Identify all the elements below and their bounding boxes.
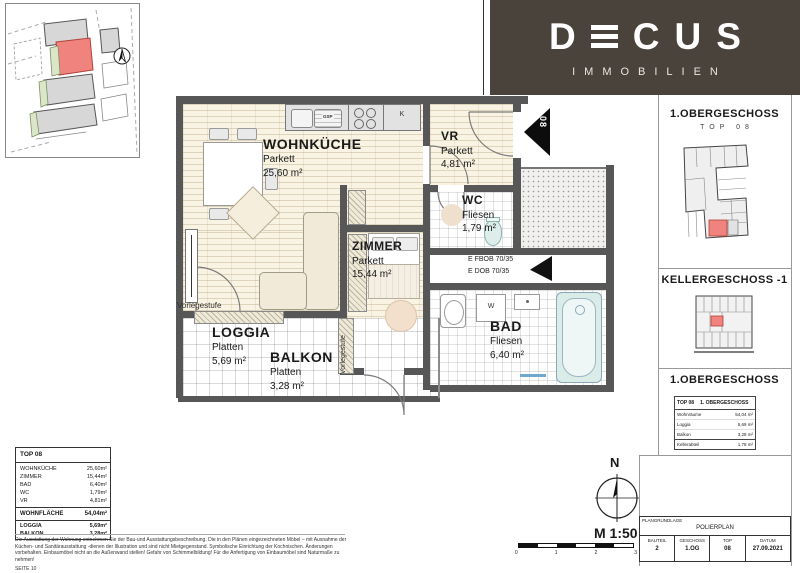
step-label-horizontal: Vorlegestufe	[177, 301, 221, 310]
radiator-mark	[191, 235, 192, 297]
room-label-balkon: BALKON Platten 3,28 m²	[270, 349, 333, 392]
legend-table: TOP 08 WOHNKÜCHE25,60m² ZIMMER15,44m² BA…	[15, 447, 111, 540]
table-header-top: TOP 08	[677, 399, 694, 407]
room-floor: Parkett	[263, 154, 362, 166]
legend-row: VR4,81m²	[16, 497, 110, 505]
table-row: Loggia 5,69 m²	[675, 419, 755, 429]
legend-row: BAD6,40m²	[16, 481, 110, 489]
highlighted-building	[56, 38, 93, 75]
step-label-vertical: Vorlegestufe	[340, 318, 347, 374]
sidebar-border-right	[791, 95, 792, 566]
sidebar-section3-title: 1.OBERGESCHOSS	[658, 374, 791, 386]
kitchen-sink	[291, 109, 313, 128]
room-name: LOGGIA	[212, 324, 270, 340]
stove-burner-2	[366, 108, 376, 118]
table-row: Kellerabteil 1,78 m²	[675, 439, 755, 449]
room-label-wohnkueche: WOHNKÜCHE Parkett 25,60 m²	[263, 136, 362, 179]
disclaimer-line: vorbehalten. Einbaumöbel nicht an die Au…	[15, 550, 355, 563]
legend-outdoor-row: LOGGIA5,69m²	[16, 522, 110, 530]
scale-bar	[518, 543, 634, 548]
titleblock-cell-geschoss: GESCHOSS 1.OG	[675, 536, 710, 562]
table-row: Balkon 3,28 m²	[675, 429, 755, 439]
brand-logo: D C U S	[549, 18, 741, 55]
row-value: 54,04 m²	[735, 410, 753, 419]
room-area: 15,44 m²	[352, 269, 402, 281]
titleblock-cell-bauteil: BAUTEIL 2	[640, 536, 675, 562]
row-value: 1,78 m²	[738, 440, 753, 449]
table-header-floor: 1. OBERGESCHOSS	[700, 399, 748, 407]
room-name: WC	[462, 194, 496, 208]
sidebar-area-table: TOP 08 1. OBERGESCHOSS Wohnräume 54,04 m…	[674, 396, 756, 450]
title-block: PLANGRUNDLAGE POLIERPLAN BAUTEIL 2 GESCH…	[639, 516, 791, 562]
room-label-bad: BAD Fliesen 6,40 m²	[490, 318, 524, 361]
room-label-wc: WC Fliesen 1,79 m²	[462, 194, 496, 235]
stove-burner-1	[354, 108, 364, 118]
fridge-label: K	[384, 111, 420, 118]
room-area: 3,28 m²	[270, 381, 333, 393]
room-area: 1,79 m²	[462, 223, 496, 235]
room-area: 4,81 m²	[441, 159, 475, 171]
room-floor: Platten	[270, 367, 333, 379]
room-floor: Fliesen	[462, 210, 496, 222]
sidebar-divider-2	[658, 368, 791, 369]
brand-letter-d: D	[549, 18, 576, 55]
room-name: VR	[441, 130, 475, 144]
room-floor: Parkett	[441, 146, 475, 158]
row-value: 5,69 m²	[738, 420, 753, 429]
scale-tick: 3	[634, 550, 637, 556]
sidebar-section1-title: 1.OBERGESCHOSS	[658, 108, 791, 120]
shaft-label-2: E DOB 70/35	[468, 268, 509, 275]
room-floor: Parkett	[352, 256, 402, 268]
overview-plan-1og	[676, 140, 772, 258]
site-plan	[5, 3, 140, 158]
table-row: Wohnräume 54,04 m²	[675, 410, 755, 419]
page-number: SEITE 10	[15, 566, 355, 573]
row-label: Balkon	[677, 430, 691, 439]
disclaimer: Die Ausstattung der Wohnung entnehmen Si…	[15, 537, 355, 573]
round-rug	[385, 300, 417, 332]
sidebar-divider-3	[639, 455, 791, 456]
banner-edge-line	[483, 0, 484, 95]
legend-row: ZIMMER15,44m²	[16, 473, 110, 481]
row-label: Loggia	[677, 420, 691, 429]
legend-title: TOP 08	[16, 448, 110, 463]
kitchen-counter: GSP K	[285, 104, 421, 131]
room-area: 6,40 m²	[490, 350, 524, 362]
cabinet-knob	[526, 300, 529, 303]
room-label-vr: VR Parkett 4,81 m²	[441, 130, 475, 171]
room-area: 5,69 m²	[212, 356, 270, 368]
row-label: Kellerabteil	[677, 440, 699, 449]
shaft-label-1: E FBOB 70/35	[468, 256, 513, 263]
titleblock-cell-top: TOP 08	[710, 536, 745, 562]
north-label: N	[610, 455, 619, 470]
dining-chair	[237, 128, 257, 140]
scale-label: M 1:50	[594, 525, 638, 541]
room-name: BAD	[490, 318, 524, 334]
washer-label: W	[476, 303, 506, 310]
bathroom-sink-basin	[444, 300, 464, 325]
brand-letter-u: U	[675, 18, 702, 55]
scale-ticks: 0 1 2 3	[515, 550, 637, 556]
brand-banner: D C U S IMMOBILIEN	[490, 0, 800, 95]
legend-row: WOHNKÜCHE25,60m²	[16, 465, 110, 473]
sofa-seat	[259, 272, 307, 310]
room-name: ZIMMER	[352, 240, 402, 254]
room-name: BALKON	[270, 349, 333, 365]
room-label-loggia: LOGGIA Platten 5,69 m²	[212, 324, 270, 367]
shower-strip	[520, 374, 546, 377]
legend-row: WC1,79m²	[16, 489, 110, 497]
scale-tick: 0	[515, 550, 518, 556]
sidebar-section1-subtitle: TOP 08	[658, 124, 791, 131]
disclaimer-rule	[15, 534, 345, 535]
brand-letter-s: S	[716, 18, 741, 55]
sidebar-divider-1	[658, 268, 791, 269]
plan-type: POLIERPLAN	[640, 525, 790, 531]
compass-icon	[594, 474, 640, 522]
stove-burner-3	[354, 119, 364, 129]
brand-letter-c: C	[633, 18, 660, 55]
row-label: Wohnräume	[677, 410, 701, 419]
dining-chair	[209, 128, 229, 140]
dining-chair	[209, 208, 229, 220]
room-area: 25,60 m²	[263, 168, 362, 180]
scale-tick: 2	[594, 550, 597, 556]
dishwasher-label: GSP	[322, 114, 334, 119]
overview-unit-highlight	[709, 220, 727, 236]
row-value: 3,28 m²	[738, 430, 753, 439]
disclaimer-line: Die Ausstattung der Wohnung entnehmen Si…	[15, 537, 355, 544]
room-label-zimmer: ZIMMER Parkett 15,44 m²	[352, 240, 402, 281]
legend-total-row: WOHNFLÄCHE54,04m²	[16, 507, 110, 520]
unit-number: 08	[538, 116, 548, 136]
sofa-chaise	[303, 212, 339, 310]
site-plan-drawing	[6, 4, 139, 157]
pouf	[441, 204, 463, 226]
cabinet-tall	[348, 190, 366, 225]
titleblock-cell-datum: DATUM 27.09.2021	[746, 536, 790, 562]
room-name: WOHNKÜCHE	[263, 136, 362, 152]
plan-basis-label: PLANGRUNDLAGE	[642, 518, 682, 523]
room-floor: Fliesen	[490, 336, 524, 348]
overview-plan-keller	[692, 292, 756, 358]
keller-unit-highlight	[711, 316, 723, 326]
sidebar-table-header: TOP 08 1. OBERGESCHOSS	[675, 397, 755, 410]
stylized-e-icon	[591, 25, 618, 48]
bathtub-drain	[575, 305, 585, 315]
brand-tagline: IMMOBILIEN	[563, 66, 727, 78]
plan-sheet: D C U S IMMOBILIEN	[0, 0, 800, 566]
sidebar-section2-title: KELLERGESCHOSS -1	[658, 274, 791, 286]
room-floor: Platten	[212, 342, 270, 354]
stove-burner-4	[366, 119, 376, 129]
scale-tick: 1	[555, 550, 558, 556]
